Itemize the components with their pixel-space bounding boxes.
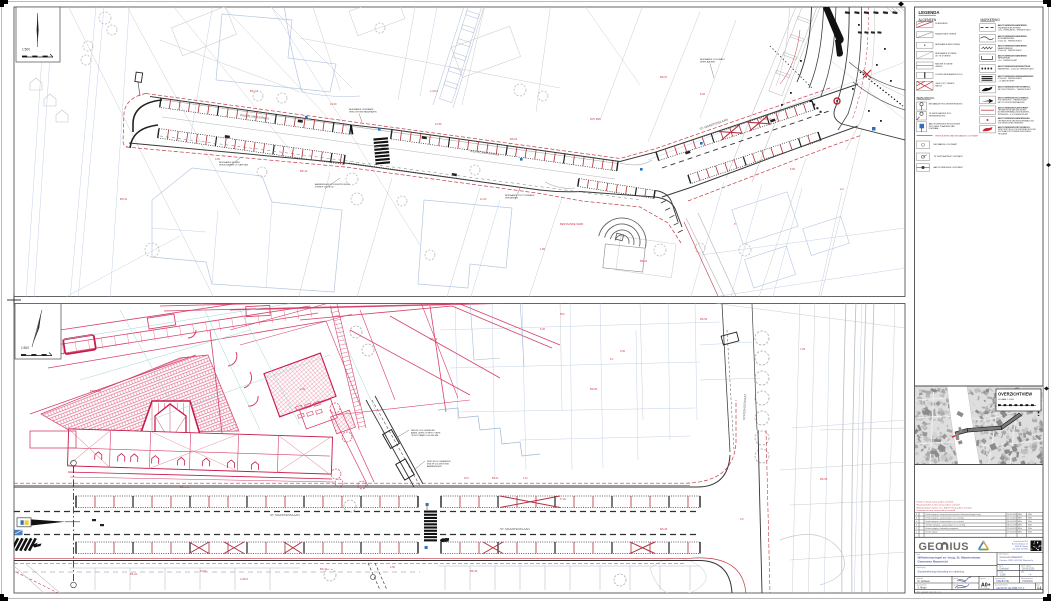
svg-text:ST. MAARTENSLAAN: ST. MAARTENSLAAN (270, 513, 300, 517)
svg-text:RVV B06: RVV B06 (590, 117, 601, 121)
svg-text:Gemeente Maastricht: Gemeente Maastricht (1000, 556, 1023, 559)
svg-text:P 2.0x5.0: P 2.0x5.0 (760, 117, 771, 121)
svg-text:Derde wijziging - aanpassingen: Derde wijziging - aanpassingen n.a.v. ov… (926, 520, 964, 523)
svg-text:VERKEERSBORD: VERKEERSBORD (929, 116, 946, 118)
svg-text:5: 5 (916, 518, 917, 520)
svg-text:P 11x: P 11x (560, 497, 567, 501)
svg-text:+31 (0)46 423 9600: +31 (0)46 423 9600 (1012, 549, 1028, 551)
svg-text:11.20: 11.20 (480, 197, 487, 201)
svg-text:12-04-2019: 12-04-2019 (1007, 528, 1017, 530)
svg-text:LEGENDA: LEGENDA (919, 10, 940, 15)
svg-text:1:500: 1:500 (1000, 574, 1007, 577)
svg-text:VERLICHTING HANDHAVEN: VERLICHTING HANDHAVEN (349, 111, 377, 114)
svg-text:FLESPAAL: FLESPAAL (929, 127, 940, 130)
svg-text:MBe: MBe (1018, 518, 1022, 520)
svg-text:12.50: 12.50 (435, 122, 442, 126)
svg-text:MET RICHTINGPIJL - THERMOPLAST: MET RICHTINGPIJL - THERMOPLAST (998, 88, 1032, 91)
svg-text:omschrijving: omschrijving (917, 567, 926, 569)
svg-text:GEONIUS-GE-MBB-T07-4: GEONIUS-GE-MBB-T07-4 (996, 587, 1025, 590)
svg-text:BS-52: BS-52 (700, 317, 708, 321)
svg-text:2.50: 2.50 (390, 565, 396, 569)
svg-text:paraaf: paraaf (954, 578, 959, 580)
svg-text:AAN TE BRENGEN LICHTMAST: AAN TE BRENGEN LICHTMAST (934, 166, 964, 169)
svg-text:6: 6 (916, 514, 917, 516)
svg-text:IUS: IUS (950, 541, 970, 553)
svg-text:3: 3 (916, 525, 917, 527)
svg-text:SMe: SMe (1028, 525, 1032, 527)
svg-text:8.20: 8.20 (700, 92, 706, 96)
svg-text:BS-41: BS-41 (130, 572, 138, 576)
svg-text:AANBRENGEN: AANBRENGEN (427, 465, 442, 468)
svg-text:1:500: 1:500 (21, 346, 29, 350)
svg-text:BS-31: BS-31 (120, 197, 128, 201)
svg-text:0.30x1.00 - THERMOPLAST: 0.30x1.00 - THERMOPLAST (998, 39, 1023, 42)
svg-text:MARKERING - 0.20x0.50 THERMOPL: MARKERING - 0.20x0.50 THERMOPLAST (998, 67, 1035, 70)
svg-text:Derde wijziging - aanpassing k: Derde wijziging - aanpassing kruispunt e… (926, 513, 982, 516)
svg-text:BS-11: BS-11 (492, 477, 499, 480)
svg-text:0.50x0.50 - THERMOPLAST: 0.50x0.50 - THERMOPLAST (998, 49, 1023, 52)
svg-text:27-03-2019: 27-03-2019 (1007, 532, 1017, 534)
svg-text:BESTAANDE BEBOUWING: BESTAANDE BEBOUWING (935, 43, 960, 46)
svg-text:L=18.0: L=18.0 (240, 577, 249, 581)
svg-text:SMe: SMe (1028, 521, 1032, 523)
svg-text:MBe: MBe (1018, 514, 1022, 516)
svg-text:SMe: SMe (1028, 518, 1032, 520)
svg-text:4.0x: 4.0x (523, 477, 528, 480)
svg-text:ALGEMEEN: ALGEMEEN (919, 18, 937, 22)
svg-text:BS-50: BS-50 (590, 387, 598, 391)
svg-text:+ 2x KANTSTREEP: + 2x KANTSTREEP (998, 79, 1015, 82)
svg-text:BS-2.1: BS-2.1 (250, 89, 258, 93)
svg-text:ST. MAARTENSLAAN: ST. MAARTENSLAAN (500, 527, 530, 531)
svg-text:18-07-2019: 18-07-2019 (1007, 525, 1017, 527)
svg-text:Postbus 1992, 6201 BZ Maastric: Postbus 1992, 6201 BZ Maastricht (1000, 559, 1034, 562)
svg-text:MBe: MBe (1018, 525, 1022, 527)
svg-text:BS-55: BS-55 (820, 477, 828, 481)
svg-text:7.25: 7.25 (800, 347, 806, 351)
svg-text:26-06-2020: 26-06-2020 (1022, 568, 1035, 571)
svg-text:MARKERING: MARKERING (981, 18, 1001, 22)
svg-text:LIGGING BESTAANDE RIOOL: LIGGING BESTAANDE RIOOL (935, 73, 964, 76)
svg-text:BS-12: BS-12 (300, 169, 308, 173)
svg-text:841x1500mm: 841x1500mm (981, 588, 991, 590)
svg-text:VERWIJDEREN VAN BESTAANDE LICH: VERWIJDEREN VAN BESTAANDE LICHTMAST (935, 135, 979, 138)
svg-text:1: 1 (916, 532, 917, 534)
svg-text:- 4 -: - 4 - (1028, 574, 1032, 577)
svg-text:SPRINGING - 0.10 THERMOPLAST: SPRINGING - 0.10 THERMOPLAST (998, 113, 1029, 116)
svg-text:MBe: MBe (1018, 532, 1022, 534)
svg-text:24-06-2020: 24-06-2020 (1007, 514, 1017, 516)
svg-text:Rioolaansluiten in det. tenzij: Rioolaansluiten in det. tenzij anders ve… (917, 503, 961, 506)
svg-text:SMe: SMe (1028, 532, 1032, 534)
svg-text:SMe: SMe (1028, 514, 1032, 516)
svg-text:BEBORDING: BEBORDING (917, 96, 936, 100)
svg-text:BESTAANDE KERK: BESTAANDE KERK (560, 222, 584, 226)
svg-text:BESTAANDE RVV-VERKEERSBORD: BESTAANDE RVV-VERKEERSBORD (929, 103, 963, 106)
svg-text:BESTAANDE LICHTMAST: BESTAANDE LICHTMAST (934, 143, 959, 146)
svg-text:BS-46: BS-46 (470, 569, 478, 573)
svg-text:Eerste wijziging - bebording a: Eerste wijziging - bebording aangepast (926, 527, 959, 530)
svg-text:UIT TE VOEREN: UIT TE VOEREN (935, 55, 951, 57)
svg-text:BS-49: BS-49 (660, 527, 668, 531)
svg-text:4.40: 4.40 (300, 387, 306, 391)
svg-text:RVV: RVV (560, 313, 565, 316)
svg-text:blad: blad (1021, 572, 1024, 574)
svg-text:L1: L1 (1038, 586, 1042, 590)
svg-text:VERPLAATSEN: VERPLAATSEN (700, 61, 715, 64)
svg-text:2: 2 (916, 528, 917, 530)
svg-text:BS-04: BS-04 (510, 137, 518, 141)
svg-text:Gemeente Maastricht: Gemeente Maastricht (918, 560, 948, 564)
svg-text:STREEP CF. DETail: STREEP CF. DETail (315, 187, 334, 189)
svg-text:TE VERPLAATSEN LICHTMAST: TE VERPLAATSEN LICHTMAST (934, 155, 964, 158)
svg-text:1:500: 1:500 (22, 48, 30, 52)
svg-text:OPSLUITBAND 100x200 MM: OPSLUITBAND 100x200 MM (411, 434, 439, 437)
svg-text:SCHAAL 1:2000: SCHAAL 1:2000 (998, 398, 1015, 401)
svg-text:10.00: 10.00 (200, 569, 207, 573)
svg-text:Maatvoering in meters t.o.v. N: Maatvoering in meters t.o.v. N.A.P. tenz… (917, 506, 973, 509)
svg-text:CRE/B/CHE: CRE/B/CHE (996, 580, 1009, 583)
svg-text:Putten in detail, tenzij ander: Putten in detail, tenzij anders vermeld (917, 501, 954, 504)
svg-text:Archimedesbaan 14: Archimedesbaan 14 (1012, 542, 1028, 545)
svg-text:TECHNIEK: TECHNIEK (998, 133, 1008, 135)
svg-text:6446 AT Geleen: 6446 AT Geleen (1015, 545, 1028, 548)
svg-text:VERWIJDEREN CF. KAPPLAN: VERWIJDEREN CF. KAPPLAN (219, 164, 248, 167)
svg-text:VERVANGEN: VERVANGEN (505, 197, 518, 200)
svg-text:L=24.0: L=24.0 (430, 89, 439, 93)
svg-text:4.50: 4.50 (215, 157, 221, 161)
svg-text:S. Meijer: S. Meijer (918, 587, 927, 590)
svg-text:GEO: GEO (919, 541, 945, 553)
svg-text:T0000000: T0000000 (1022, 580, 1033, 583)
svg-text:KADASTRALE GRENS: KADASTRALE GRENS (935, 32, 957, 35)
svg-text:MBe: MBe (1018, 528, 1022, 530)
svg-text:VOLGENS DETAILTEKENING: VOLGENS DETAILTEKENING (998, 122, 1024, 125)
svg-text:BS-39: BS-39 (430, 337, 438, 341)
svg-text:MET VOORSORTEERVAKKEN: MET VOORSORTEERVAKKEN (998, 101, 1025, 104)
svg-text:21-11-2019: 21-11-2019 (1007, 518, 1017, 520)
svg-text:4: 4 (916, 521, 917, 523)
svg-text:1.00 - OVERLANGS - THERMOPLAST: 1.00 - OVERLANGS - THERMOPLAST (998, 29, 1032, 32)
svg-text:GRENS: GRENS (935, 66, 943, 68)
svg-text:6.50: 6.50 (790, 167, 796, 171)
svg-text:PERRON: PERRON (90, 389, 101, 393)
svg-text:Eerste uitgave: Eerste uitgave (926, 531, 938, 534)
svg-text:PLANGRENS: PLANGRENS (935, 22, 948, 25)
svg-text:30.5: 30.5 (464, 477, 469, 480)
svg-text:MBe: MBe (1018, 521, 1022, 523)
svg-text:2.0: 2.0 (740, 517, 744, 521)
svg-text:OVERZICHTVIEW: OVERZICHTVIEW (998, 392, 1032, 397)
svg-text:SMe: SMe (1028, 528, 1032, 530)
svg-text:BS-44: BS-44 (320, 567, 328, 571)
svg-text:Tweede wijziging - aanpassinge: Tweede wijziging - aanpassingen n.a.v. o… (926, 524, 965, 527)
svg-text:Derde wijziging - aanpassingen: Derde wijziging - aanpassingen n.a.v. ov… (926, 517, 964, 520)
svg-text:6.00: 6.00 (540, 327, 546, 331)
svg-text:Definitief: Definitief (1000, 568, 1010, 571)
svg-text:0.10 - THERMOPLAST: 0.10 - THERMOPLAST (998, 59, 1018, 62)
svg-text:10.00: 10.00 (330, 102, 337, 106)
svg-text:BS-07: BS-07 (660, 75, 668, 79)
svg-text:M. Gorissen: M. Gorissen (918, 580, 931, 583)
svg-text:Diameters in mm, tenzij anders: Diameters in mm, tenzij anders vermeld (917, 509, 956, 512)
svg-text:BS-22: BS-22 (640, 259, 648, 263)
svg-text:HATCH: HATCH (935, 84, 942, 87)
svg-text:1.80: 1.80 (540, 247, 546, 251)
svg-text:30 km/u: 30 km/u (180, 485, 190, 489)
svg-text:P: P (734, 222, 736, 226)
svg-text:16-09-2019: 16-09-2019 (1007, 521, 1017, 523)
svg-text:2.2: 2.2 (840, 187, 844, 191)
svg-text:A0+: A0+ (981, 583, 991, 589)
svg-text:Situatietekening bebording en: Situatietekening bebording en markering (918, 569, 965, 573)
svg-text:3.30: 3.30 (620, 349, 626, 353)
